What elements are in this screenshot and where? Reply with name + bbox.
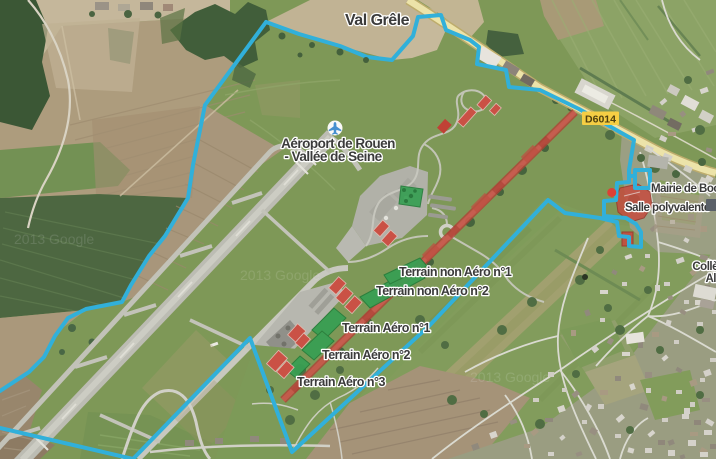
svg-text:Terrain Aéro n°1: Terrain Aéro n°1 [342,321,431,335]
svg-text:Val Grêle: Val Grêle [345,12,410,29]
svg-text:Mairie de Boo: Mairie de Boo [651,183,716,195]
svg-text:Collè: Collè [692,261,716,273]
svg-text:Terrain non Aéro n°2: Terrain non Aéro n°2 [376,284,489,298]
svg-text:Terrain Aéro n°3: Terrain Aéro n°3 [297,375,386,389]
svg-text:- Vallée de Seine: - Vallée de Seine [284,149,382,164]
svg-text:Terrain Aéro n°2: Terrain Aéro n°2 [322,348,411,362]
svg-text:Terrain non Aéro n°1: Terrain non Aéro n°1 [399,265,512,279]
svg-text:Al: Al [706,273,716,285]
svg-text:Salle polyvalente: Salle polyvalente [625,202,710,214]
